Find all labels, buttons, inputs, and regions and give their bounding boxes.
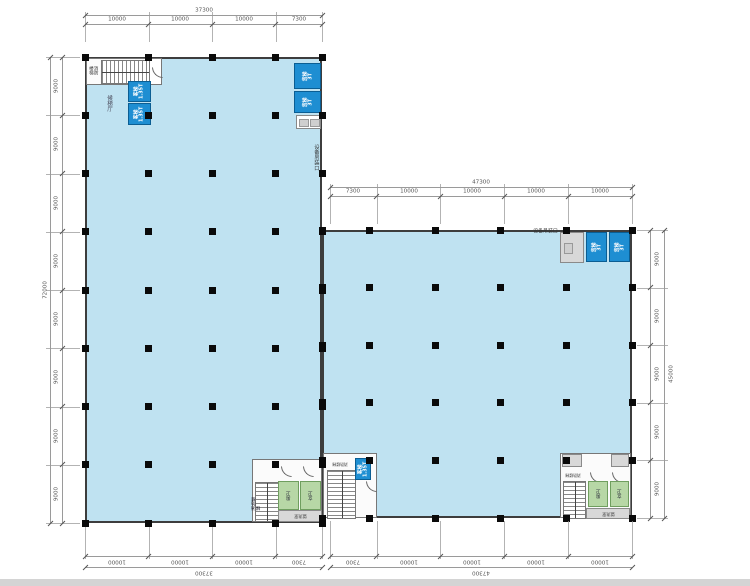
stair-label-bottom-2: 消防楼梯 — [325, 459, 355, 468]
dim-line — [650, 230, 651, 518]
column — [272, 54, 279, 61]
column — [145, 54, 152, 61]
column — [319, 457, 326, 464]
dim-label: 10000 — [591, 188, 609, 194]
dim-line — [330, 567, 632, 568]
column — [82, 54, 89, 61]
hoist-opening-label: 设备吊装口 — [533, 228, 558, 235]
washroom-1: 盥洗室 — [278, 510, 322, 522]
fixture — [299, 119, 309, 127]
dim-line — [85, 556, 322, 557]
dim-label: 10000 — [235, 559, 253, 565]
dim-label: 9000 — [654, 367, 660, 381]
extension-line — [504, 184, 505, 224]
column — [629, 342, 636, 349]
dim-label: 10000 — [108, 559, 126, 565]
freight-lift-label: 货梯 3T — [302, 71, 312, 81]
column — [319, 170, 326, 177]
column — [145, 403, 152, 410]
dim-label: 10000 — [463, 559, 481, 565]
column — [209, 228, 216, 235]
column — [497, 284, 504, 291]
column — [145, 170, 152, 177]
equipment-room-top-right — [560, 232, 584, 263]
stair-label-bottom-3: 消防楼梯 — [560, 470, 586, 479]
column — [563, 399, 570, 406]
column — [82, 228, 89, 235]
female-toilet-1: 女卫 — [300, 481, 321, 510]
extension-line — [637, 460, 668, 461]
column — [272, 170, 279, 177]
dim-label: 37300 — [195, 7, 213, 13]
column — [497, 457, 504, 464]
dim-label: 10000 — [400, 559, 418, 565]
lift-lobby: 候梯厅 — [103, 88, 116, 118]
column — [209, 170, 216, 177]
male-toilet-1: 男卫 — [278, 481, 299, 510]
column — [319, 515, 326, 522]
extension-line — [632, 521, 633, 559]
dim-label: 9000 — [654, 482, 660, 496]
column — [272, 287, 279, 294]
service-box-2 — [611, 454, 629, 467]
column — [272, 461, 279, 468]
door-arc-icon — [152, 67, 163, 78]
fire-stair-label: 消防楼梯 — [251, 494, 260, 511]
column — [82, 345, 89, 352]
column — [563, 342, 570, 349]
extension-line — [632, 184, 633, 224]
dim-label: 7300 — [292, 16, 306, 22]
lift-lobby-label: 候梯厅 — [106, 95, 114, 112]
dim-line — [85, 567, 322, 568]
dim-label: 9000 — [654, 252, 660, 266]
column — [82, 112, 89, 119]
column — [319, 399, 326, 406]
dim-label: 9000 — [53, 137, 59, 151]
column — [432, 227, 439, 234]
column — [145, 112, 152, 119]
column — [319, 54, 326, 61]
column — [497, 399, 504, 406]
freight-lift-2: 货梯 3T — [294, 91, 321, 113]
column — [629, 399, 636, 406]
extension-line — [568, 521, 569, 559]
column — [432, 284, 439, 291]
extension-line — [330, 184, 331, 224]
extension-line — [637, 403, 668, 404]
stair-treads-bottom-2 — [327, 470, 356, 519]
female-toilet-2: 女卫 — [610, 481, 629, 507]
stair-treads-bottom-3 — [563, 481, 586, 519]
extension-line — [46, 232, 80, 233]
extension-line — [440, 184, 441, 224]
dim-label: 10000 — [171, 16, 189, 22]
extension-line — [149, 12, 150, 42]
column — [272, 345, 279, 352]
column — [319, 112, 326, 119]
dim-label: 47300 — [472, 179, 490, 185]
dim-label: 9000 — [53, 312, 59, 326]
dim-label: 37300 — [195, 570, 213, 576]
dim-label: 10000 — [235, 16, 253, 22]
column — [145, 345, 152, 352]
dim-label: 10000 — [171, 559, 189, 565]
male-toilet-2: 男卫 — [588, 481, 608, 507]
column — [319, 342, 326, 349]
dim-label: 9000 — [53, 254, 59, 268]
dim-label: 72000 — [42, 281, 48, 299]
column — [319, 227, 326, 234]
dim-label: 9000 — [53, 195, 59, 209]
extension-line — [637, 345, 668, 346]
column — [209, 520, 216, 527]
extension-line — [568, 184, 569, 224]
column — [366, 284, 373, 291]
column — [629, 227, 636, 234]
freight-lift-label: 货梯 3T — [302, 97, 312, 107]
fire-stair-label: 消防楼梯 — [565, 472, 580, 478]
column — [145, 461, 152, 468]
column — [497, 227, 504, 234]
stair-label-bottom-1: 消防楼梯 — [251, 489, 261, 515]
dim-label: 9000 — [53, 487, 59, 501]
dim-label: 7300 — [346, 188, 360, 194]
dim-label: 10000 — [400, 188, 418, 194]
column — [82, 170, 89, 177]
floor-plan-canvas: 消防楼梯 候梯厅 客梯 1.35T 客梯 1.35T 货梯 3T 货梯 3T 设… — [0, 0, 750, 586]
column — [366, 342, 373, 349]
column — [432, 457, 439, 464]
freight-lift-3: 货梯 3T — [586, 232, 607, 262]
female-toilet-label: 女卫 — [308, 491, 313, 500]
fire-stair-label: 消防楼梯 — [89, 66, 99, 76]
column — [209, 403, 216, 410]
male-toilet-label: 男卫 — [596, 489, 601, 498]
left-building — [85, 57, 322, 523]
fixture — [564, 243, 573, 254]
dim-label: 9000 — [53, 428, 59, 442]
column — [272, 520, 279, 527]
column — [272, 112, 279, 119]
washroom-label: 盥洗室 — [602, 511, 615, 517]
male-toilet-label: 男卫 — [286, 491, 291, 500]
column — [319, 284, 326, 291]
extension-line — [377, 184, 378, 224]
column — [629, 284, 636, 291]
dim-line — [330, 187, 632, 188]
column — [209, 112, 216, 119]
freight-lift-label: 货梯 3T — [614, 242, 624, 252]
dim-label: 10000 — [463, 188, 481, 194]
column — [82, 403, 89, 410]
dim-label: 10000 — [527, 559, 545, 565]
freight-lift-label: 货梯 3T — [591, 242, 601, 252]
column — [209, 461, 216, 468]
column — [272, 403, 279, 410]
fixture — [310, 119, 320, 127]
female-toilet-label: 女卫 — [617, 489, 622, 498]
column — [366, 227, 373, 234]
freight-lift-4: 货梯 3T — [609, 232, 630, 262]
fire-stair-label: 消防楼梯 — [332, 461, 347, 467]
column — [272, 228, 279, 235]
extension-line — [330, 521, 331, 559]
stair-label-top-left: 消防楼梯 — [87, 61, 100, 81]
dim-label: 45000 — [668, 365, 674, 383]
column — [366, 457, 373, 464]
column — [563, 227, 570, 234]
dim-label: 9000 — [654, 424, 660, 438]
column — [432, 399, 439, 406]
dim-label: 47300 — [472, 570, 490, 576]
column — [82, 461, 89, 468]
column — [563, 457, 570, 464]
column — [145, 520, 152, 527]
passenger-lift-1: 客梯 1.35T — [128, 81, 151, 102]
column — [209, 54, 216, 61]
column — [209, 345, 216, 352]
column — [629, 457, 636, 464]
washroom-label: 盥洗室 — [294, 513, 307, 519]
column — [432, 342, 439, 349]
dim-label: 9000 — [53, 370, 59, 384]
dim-label: 7300 — [346, 559, 360, 565]
column — [82, 520, 89, 527]
column — [145, 228, 152, 235]
dim-label: 10000 — [108, 16, 126, 22]
washroom-2: 盥洗室 — [586, 508, 630, 519]
column — [145, 287, 152, 294]
extension-line — [46, 465, 80, 466]
freight-lift-1: 货梯 3T — [294, 63, 321, 89]
dim-line — [85, 24, 322, 25]
dim-label: 7300 — [292, 559, 306, 565]
column — [563, 284, 570, 291]
fixture-room — [296, 115, 321, 129]
column — [209, 287, 216, 294]
column — [497, 342, 504, 349]
column — [366, 515, 373, 522]
column — [432, 515, 439, 522]
dim-label: 10000 — [591, 559, 609, 565]
dim-label: 9000 — [654, 309, 660, 323]
dim-label: 10000 — [527, 188, 545, 194]
passenger-lift-label: 客梯 1.35T — [134, 84, 144, 99]
passenger-lift-label: 客梯 1.35T — [134, 106, 144, 121]
dim-label: 9000 — [53, 79, 59, 93]
column — [366, 399, 373, 406]
extension-line — [276, 12, 277, 42]
hoist-opening-label: 设备吊装口 — [314, 144, 319, 170]
column — [82, 287, 89, 294]
dim-line — [664, 230, 665, 518]
extension-line — [212, 12, 213, 42]
extension-line — [637, 288, 668, 289]
window-bottom-edge — [0, 579, 750, 586]
